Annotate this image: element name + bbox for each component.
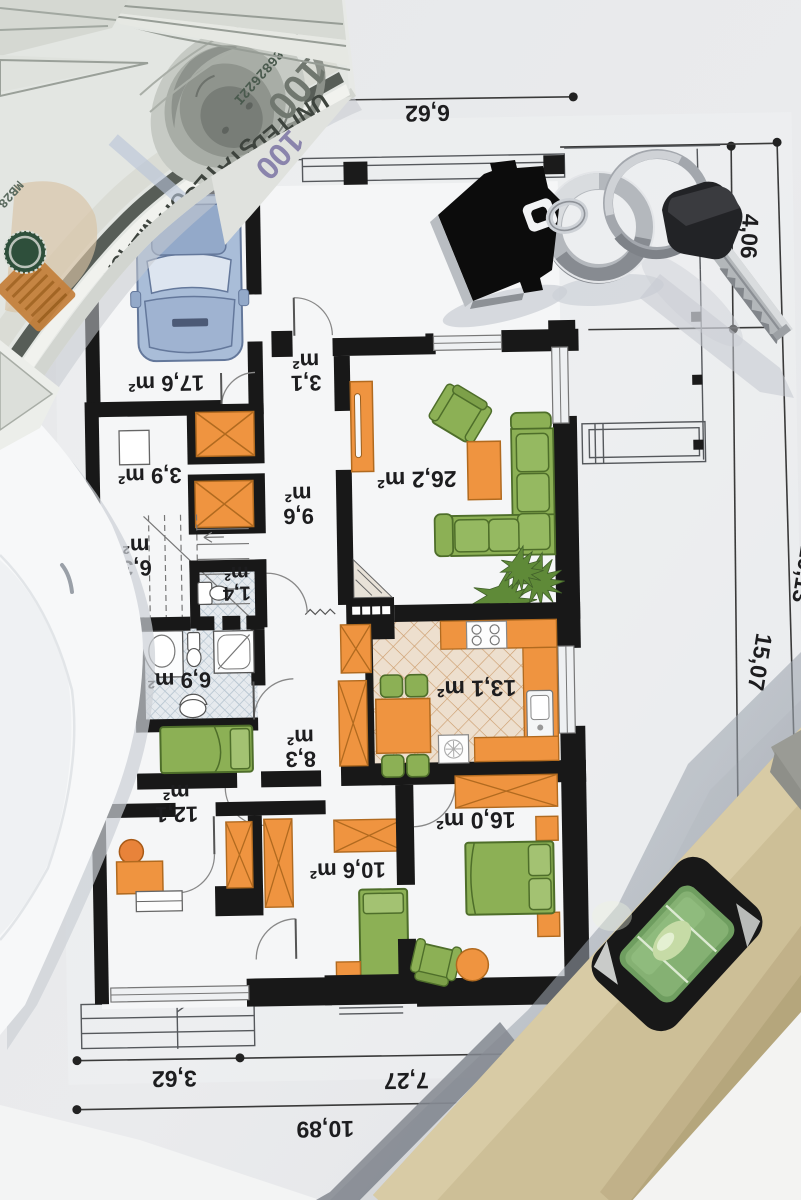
svg-text:7,27: 7,27 [384, 1068, 429, 1095]
svg-text:9,6m²: 9,6m² [283, 481, 314, 529]
svg-text:6,9 m²: 6,9 m² [147, 667, 211, 693]
svg-text:1,4m²: 1,4m² [222, 562, 251, 604]
svg-text:3,9 m²: 3,9 m² [118, 463, 182, 489]
svg-text:10,6 m²: 10,6 m² [310, 857, 386, 883]
svg-text:16,0 m²: 16,0 m² [436, 807, 516, 834]
svg-text:3,62: 3,62 [152, 1066, 197, 1093]
svg-text:26,2 m²: 26,2 m² [377, 466, 457, 493]
svg-text:3,1m²: 3,1m² [290, 348, 321, 396]
svg-text:8,3m²: 8,3m² [285, 724, 316, 772]
svg-text:10,89: 10,89 [296, 1116, 354, 1143]
svg-text:13,1 m²: 13,1 m² [436, 675, 516, 702]
svg-text:6,62: 6,62 [405, 100, 450, 127]
svg-text:17,6 m²: 17,6 m² [128, 370, 204, 396]
